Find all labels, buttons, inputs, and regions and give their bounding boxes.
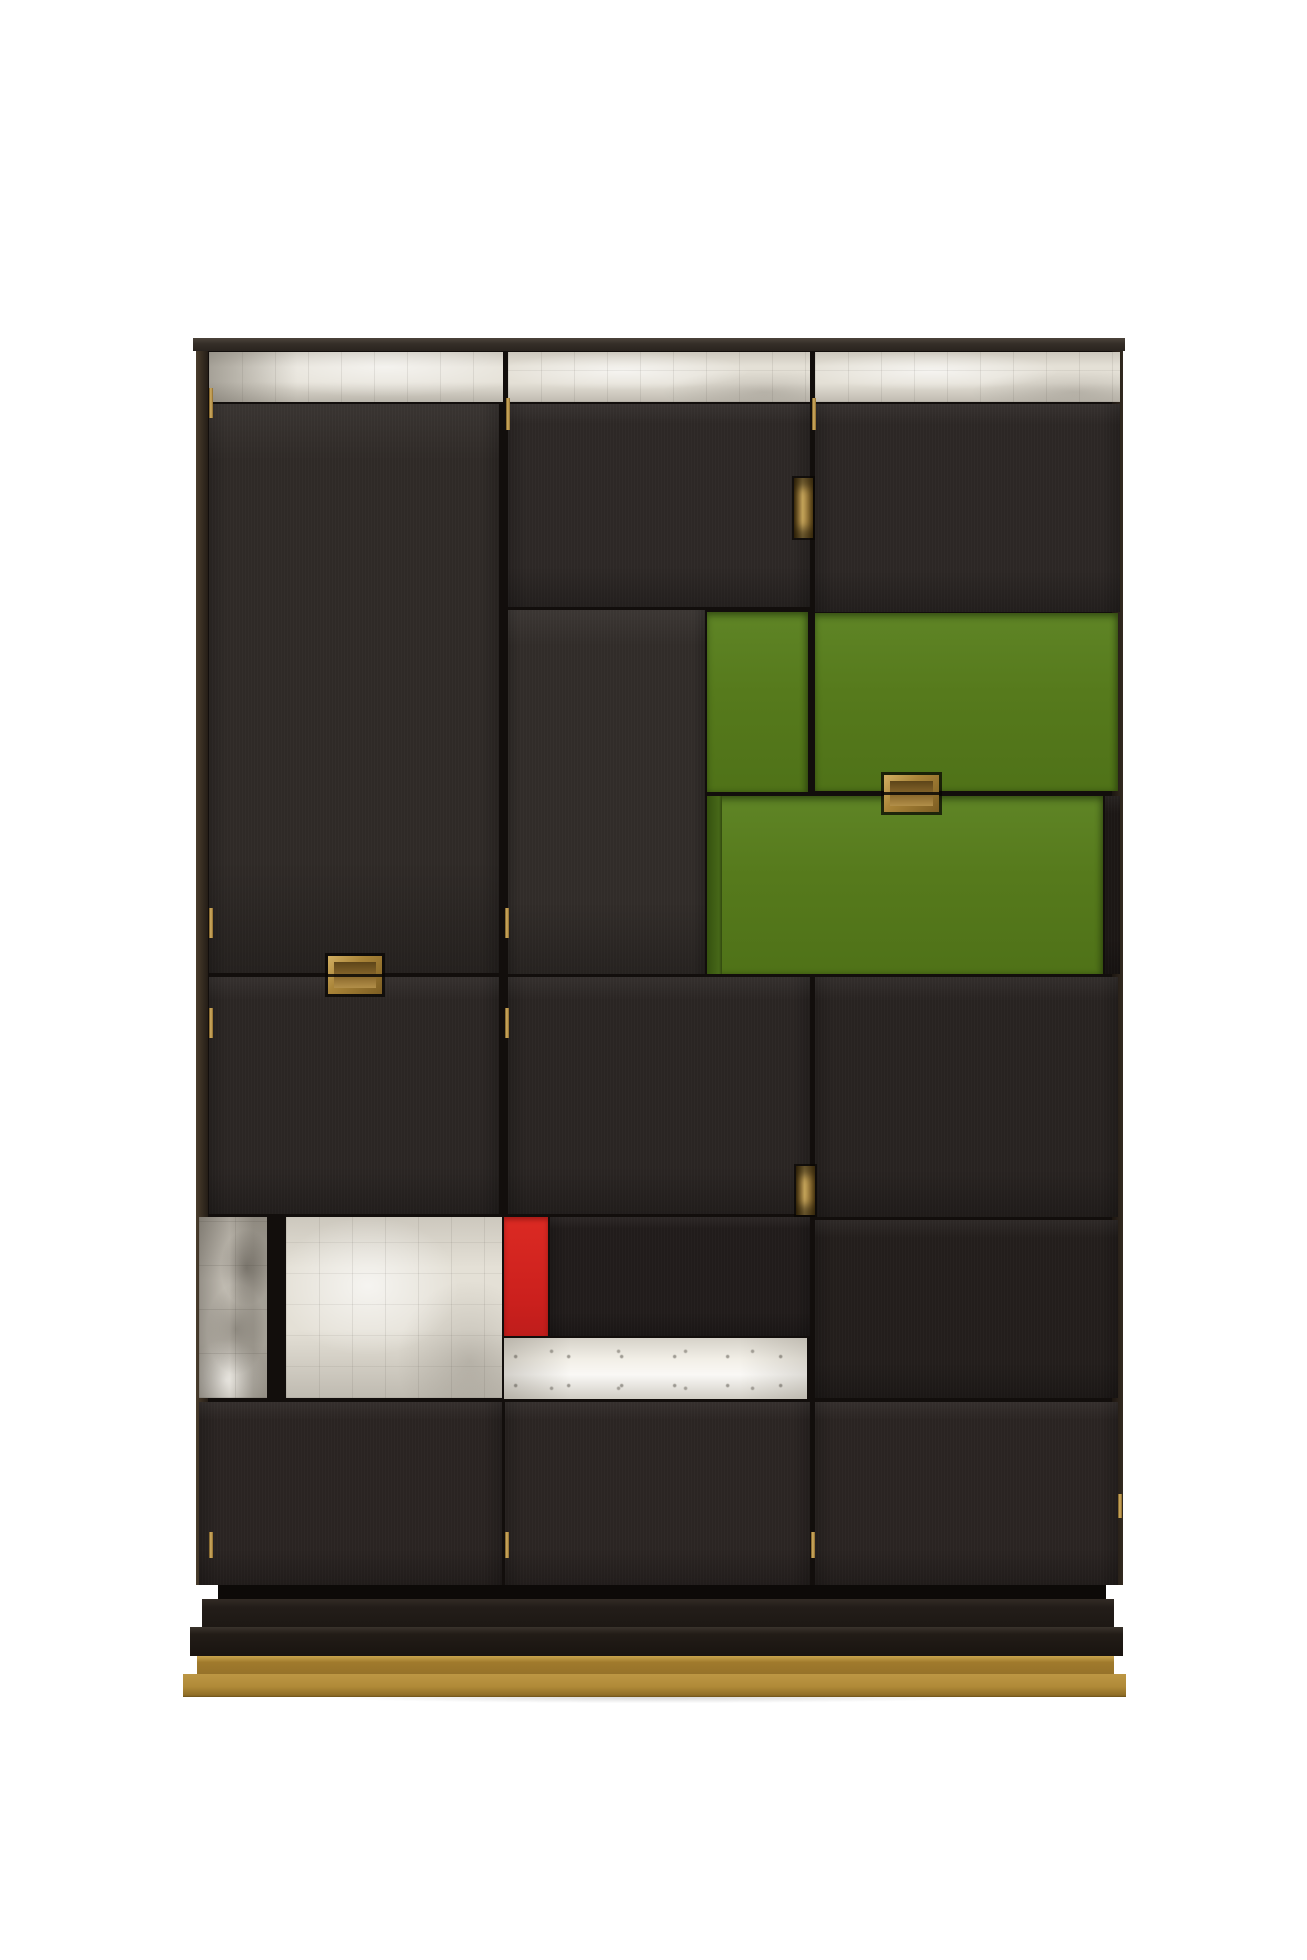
hinge-pin-icon <box>505 1008 509 1038</box>
door-right-middle <box>815 977 1118 1217</box>
door-middle-left <box>508 610 705 974</box>
door-right-bottom <box>815 1402 1118 1585</box>
door-seam-through-handle <box>884 792 939 795</box>
hinge-pin-icon <box>209 1532 213 1558</box>
cabinet-photograph <box>0 0 1307 1960</box>
floor-shadow <box>180 1697 1130 1707</box>
plinth-shadow-gap <box>218 1585 1106 1599</box>
hinge-pin-icon <box>505 1532 509 1558</box>
door-seam-through-handle <box>328 974 382 977</box>
handle-green-drawer <box>884 775 939 812</box>
panel-right-of-red <box>550 1217 810 1336</box>
plinth-step-lower <box>190 1627 1123 1656</box>
hinge-pin-icon <box>1118 1494 1122 1518</box>
door-left-middle <box>209 977 499 1214</box>
silver-panel-mottled <box>199 1217 267 1398</box>
silver-band-right <box>815 352 1120 402</box>
door-right-lower <box>815 1220 1118 1398</box>
handle-middle-top-door <box>794 478 813 538</box>
handle-left-doors <box>328 956 382 994</box>
panel-right-of-drawer <box>1105 796 1120 974</box>
silver-band-middle <box>508 352 810 402</box>
cabinet-left-side-edge <box>196 351 208 1585</box>
silver-band-left <box>209 352 503 402</box>
cabinet-face <box>196 351 1123 1585</box>
green-drawer-side-shadow <box>707 796 722 974</box>
hinge-pin-icon <box>506 398 510 430</box>
door-middle-bottom <box>505 1402 810 1585</box>
brass-base-upper <box>197 1656 1114 1674</box>
hinge-pin-icon <box>811 1532 815 1558</box>
hinge-pin-icon <box>209 1008 213 1038</box>
plinth-step-upper <box>202 1599 1114 1627</box>
green-door-small <box>707 612 808 792</box>
door-right-top <box>815 404 1120 612</box>
door-left-tall <box>209 404 499 973</box>
green-drawer-front <box>707 796 1103 974</box>
door-middle-middle <box>508 977 810 1214</box>
silver-strip-lower-middle <box>504 1338 807 1399</box>
green-door-large <box>815 613 1118 791</box>
handle-middle-lower-door <box>796 1166 815 1215</box>
door-middle-top <box>508 404 810 607</box>
hinge-pin-icon <box>812 398 816 430</box>
silver-panel-bright <box>286 1217 502 1398</box>
brass-base-lower <box>183 1674 1126 1697</box>
hinge-pin-icon <box>505 908 509 938</box>
hinge-pin-icon <box>209 388 213 418</box>
hinge-pin-icon <box>209 908 213 938</box>
red-lacquer-panel <box>504 1217 548 1336</box>
cabinet-top-board <box>193 338 1125 351</box>
door-left-bottom <box>199 1402 502 1585</box>
